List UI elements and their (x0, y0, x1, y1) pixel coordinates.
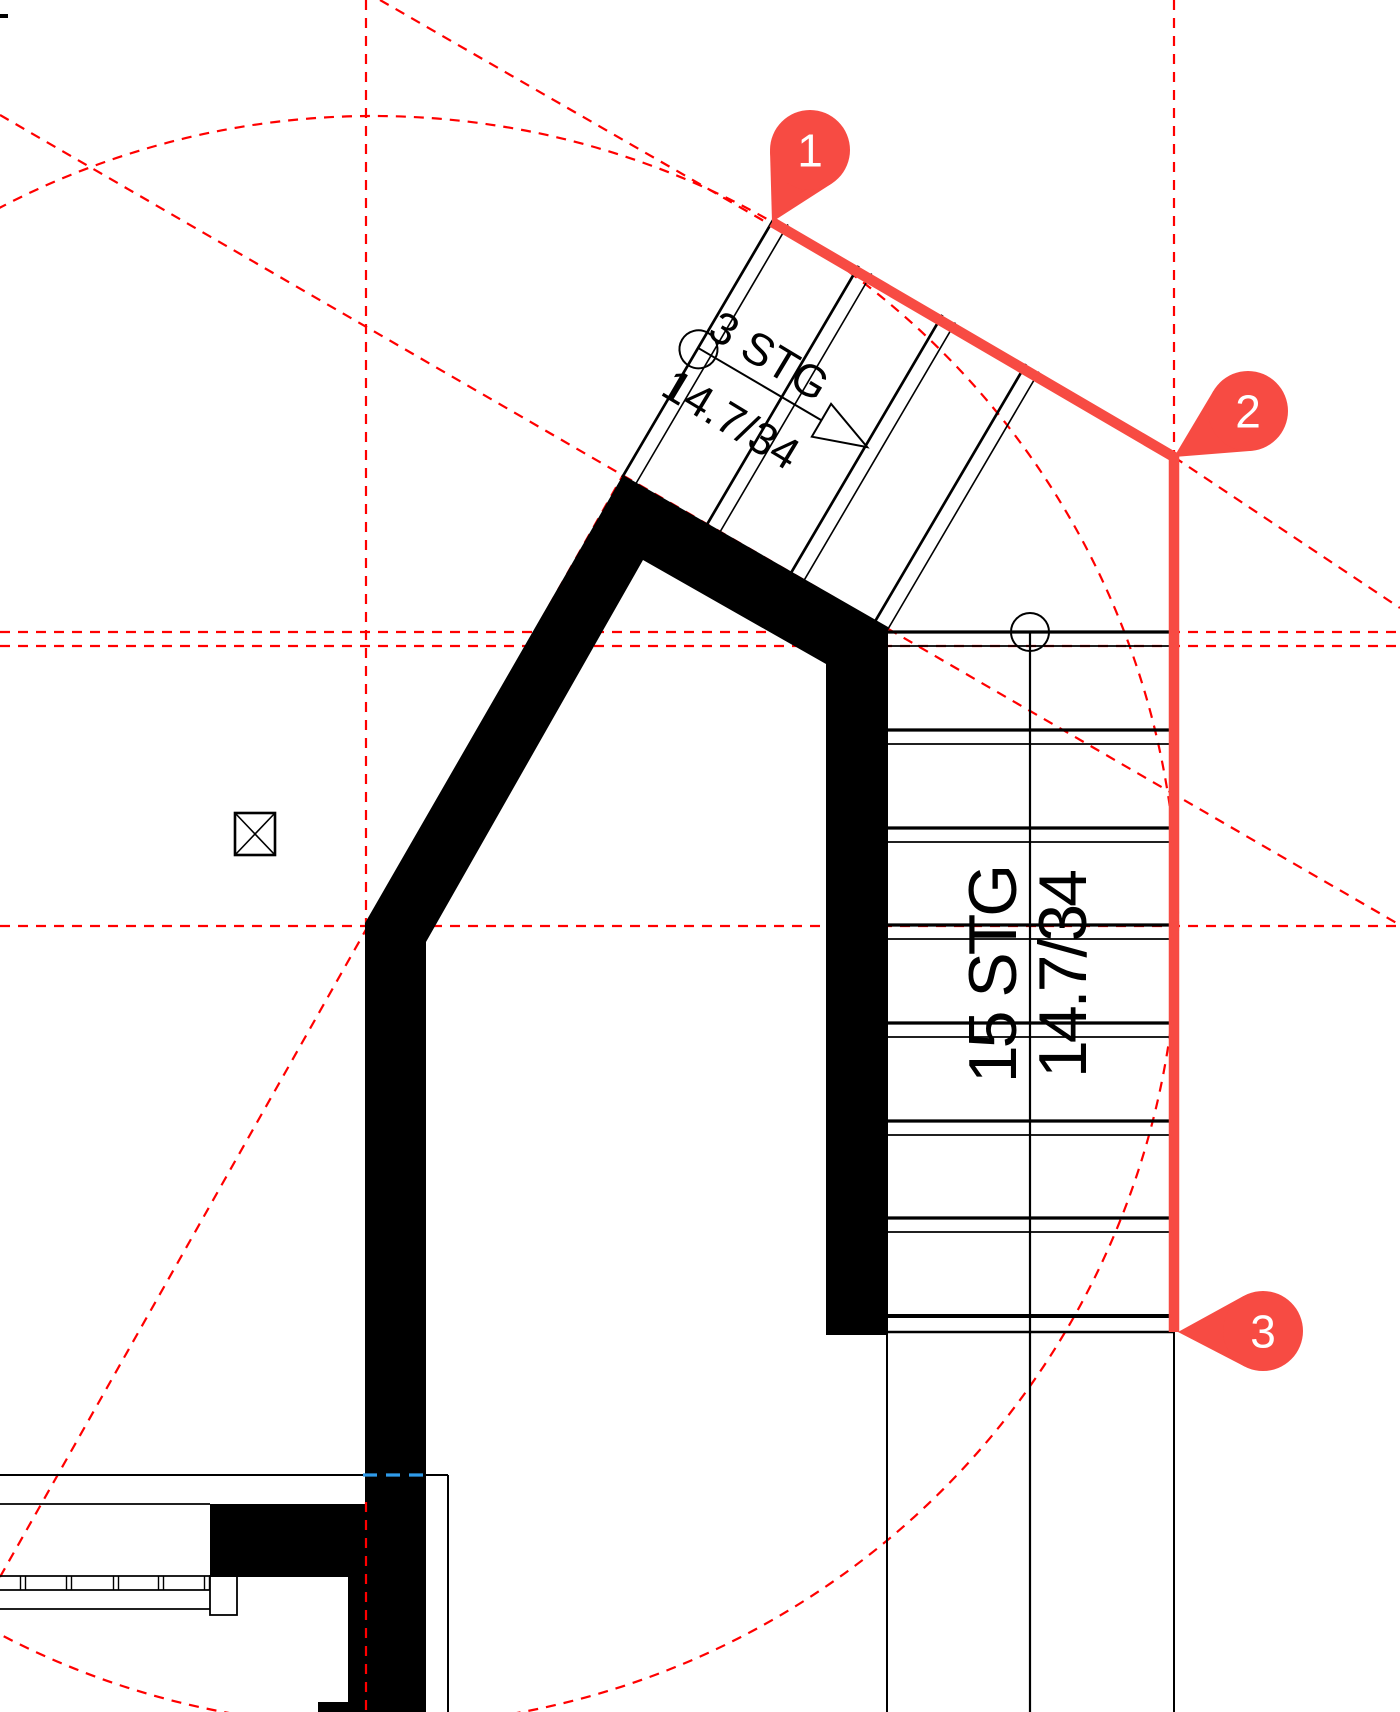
construction-line-axis-from-marker2 (1174, 457, 1400, 608)
marker-number: 1 (797, 125, 823, 177)
lower-stair-count: 15 STG (958, 775, 1028, 1175)
wall-solid (210, 475, 888, 1712)
wall-layer (0, 14, 888, 1712)
marker-number: 3 (1250, 1306, 1276, 1358)
counter-end-box (210, 1576, 237, 1615)
marker-pin-2[interactable]: 2 (1174, 371, 1288, 457)
floor-plan-screenshot: 123 3 STG 14.7/34 15 STG 14.7/34 (0, 0, 1400, 1712)
construction-layer (0, 0, 1400, 1712)
marker-pin-1[interactable]: 1 (770, 110, 850, 222)
marker-pin-3[interactable]: 3 (1178, 1291, 1303, 1371)
lower-stair-dims: 14.7/34 (1028, 775, 1098, 1175)
marker-number: 2 (1235, 386, 1261, 438)
floor-plan-canvas: 123 (0, 0, 1400, 1712)
lower-stair-label: 15 STG 14.7/34 (958, 775, 1098, 1175)
corner-tick (0, 14, 8, 18)
